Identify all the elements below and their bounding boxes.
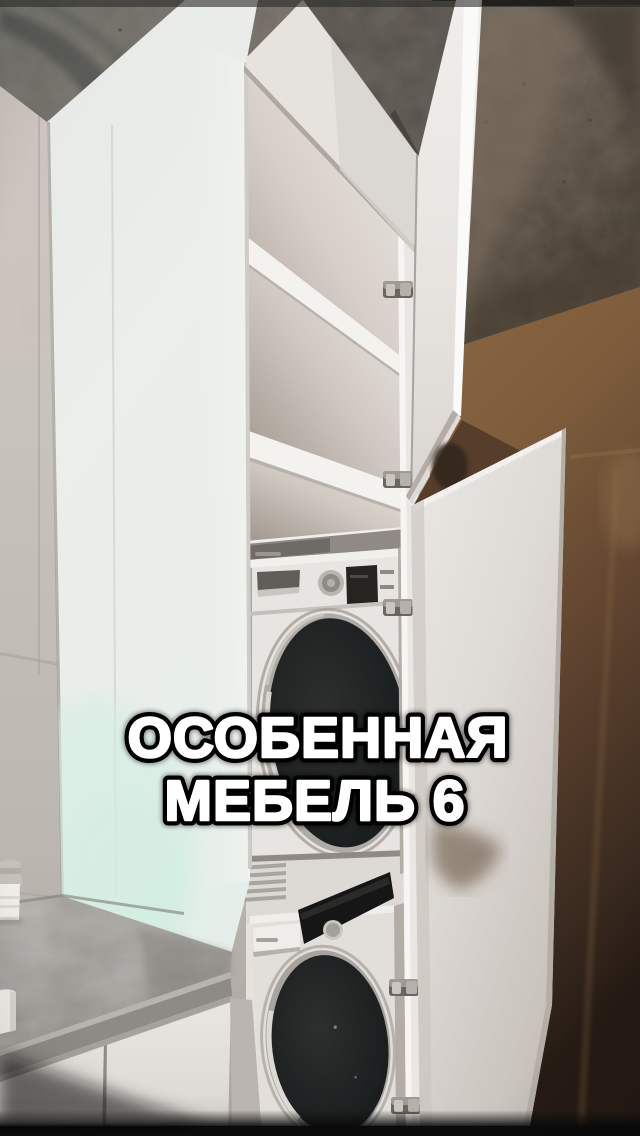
svg-text:МЕБЕЛЬ 6: МЕБЕЛЬ 6 — [165, 769, 466, 833]
svg-text:ОСОБЕННАЯ: ОСОБЕННАЯ — [128, 706, 509, 770]
